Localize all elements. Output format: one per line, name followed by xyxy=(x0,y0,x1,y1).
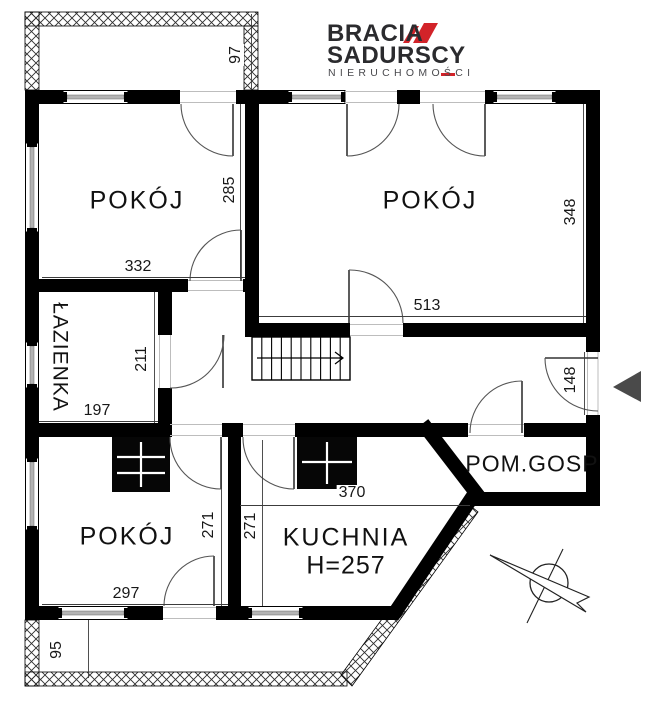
door-swing xyxy=(347,104,399,156)
window xyxy=(26,342,39,388)
dimension-entry-hall: 148 xyxy=(563,365,579,396)
window xyxy=(26,458,39,530)
dimension-room-bl-height: 271 xyxy=(201,510,217,541)
dimension-kitchen-width: 370 xyxy=(337,485,368,501)
door-swing xyxy=(170,335,224,388)
door-swing xyxy=(243,437,294,489)
window xyxy=(248,607,303,620)
room-label-top-left: POKÓJ xyxy=(90,189,185,214)
door-swing xyxy=(181,104,233,156)
window xyxy=(288,91,345,104)
chimney-block xyxy=(112,437,170,492)
entrance-arrow-icon xyxy=(613,371,641,402)
dimension-balcony-top: 97 xyxy=(228,44,244,66)
north-arrow-icon xyxy=(490,549,589,623)
door-swing xyxy=(470,381,522,433)
dimension-room-bl-width: 297 xyxy=(111,586,142,602)
floor-plan-drawing xyxy=(0,0,652,720)
room-label-top-right: POKÓJ xyxy=(383,189,478,214)
door-swing xyxy=(190,230,241,281)
door-swing xyxy=(349,270,403,323)
logo-brand-line2: SADURSCY xyxy=(327,44,466,68)
window xyxy=(63,91,128,104)
window xyxy=(58,607,128,620)
door-swing xyxy=(164,556,214,606)
dimension-kitchen-height: 271 xyxy=(243,511,259,542)
chimney-block xyxy=(297,437,357,489)
balcony-top-hatch xyxy=(25,12,258,90)
room-kitchen-height-note: H=257 xyxy=(306,554,385,579)
window xyxy=(493,91,556,104)
room-label-bathroom: ŁAZIENKA xyxy=(50,302,71,412)
stairs xyxy=(252,337,350,380)
dimension-room-tl-height: 285 xyxy=(222,175,238,206)
logo-tagline: NIERUCHOMOŚCI xyxy=(328,68,474,79)
floor-plan: BRACIA SADURSCY NIERUCHOMOŚCI POKÓJ POKÓ… xyxy=(0,0,652,720)
dimension-bathroom-height: 211 xyxy=(134,344,150,374)
door-swing xyxy=(433,104,485,156)
dimension-bathroom-width: 197 xyxy=(82,403,113,419)
dimension-room-tl-width: 332 xyxy=(123,259,154,275)
dimension-room-tr-width: 513 xyxy=(412,298,443,314)
room-label-bottom-left: POKÓJ xyxy=(80,525,175,550)
door-swing xyxy=(170,437,221,489)
dimension-room-tr-height: 348 xyxy=(563,197,579,228)
room-label-kitchen: KUCHNIA xyxy=(283,526,410,551)
window xyxy=(26,143,39,232)
dimension-balcony-bottom: 95 xyxy=(49,639,65,661)
room-label-utility: POM.GOSP xyxy=(465,453,598,476)
